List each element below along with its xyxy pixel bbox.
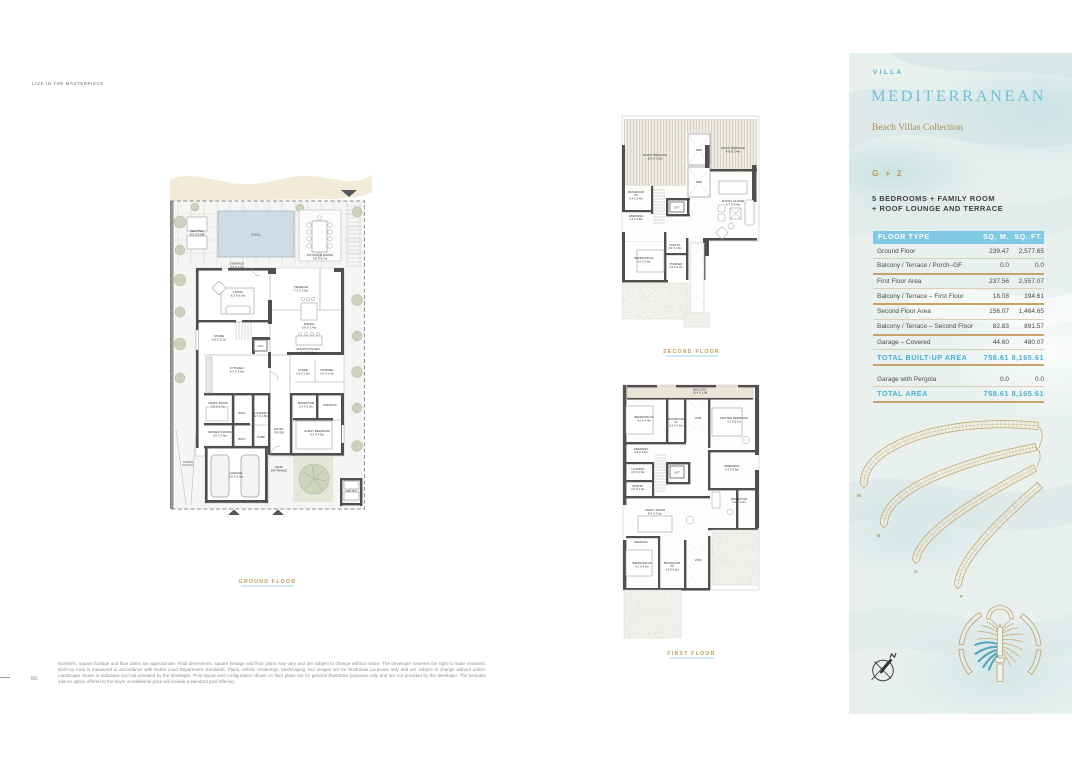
- svg-text:2.0 X 1.6m: 2.0 X 1.6m: [631, 470, 645, 474]
- svg-text:1.7 X 2.5m: 1.7 X 2.5m: [254, 414, 268, 418]
- svg-text:M: M: [857, 493, 861, 498]
- svg-text:6.3 X 6.0m: 6.3 X 6.0m: [231, 293, 246, 297]
- svg-text:4.5 X 5.5M: 4.5 X 5.5M: [190, 232, 205, 236]
- svg-text:1.6 X 2.3m: 1.6 X 2.3m: [669, 265, 683, 269]
- svg-text:POOL: POOL: [251, 233, 261, 237]
- svg-text:10.4 X 1.08: 10.4 X 1.08: [693, 391, 708, 395]
- svg-text:4.1 X 4.0m: 4.1 X 4.0m: [310, 432, 325, 436]
- svg-text:PARKING: PARKING: [182, 464, 193, 467]
- svg-text:4.1 X 4.0m: 4.1 X 4.0m: [732, 500, 746, 504]
- svg-text:DRESSING: DRESSING: [634, 540, 648, 544]
- svg-text:ENTRANCE: ENTRANCE: [271, 468, 287, 472]
- svg-text:8.5 X 7.2m: 8.5 X 7.2m: [648, 157, 663, 161]
- svg-text:BATH: BATH: [239, 437, 246, 441]
- svg-text:4.2 X 4.4m: 4.2 X 4.4m: [637, 418, 652, 422]
- svg-text:4.9 X 3.4m: 4.9 X 3.4m: [726, 150, 741, 154]
- svg-text:4.7 X 2.8m: 4.7 X 2.8m: [725, 467, 740, 471]
- svg-text:VOID: VOID: [695, 558, 702, 562]
- svg-text:DRESSING: DRESSING: [323, 403, 337, 407]
- svg-text:2.6 X 2.4m: 2.6 X 2.4m: [634, 450, 648, 454]
- svg-text:BATH: BATH: [239, 411, 246, 415]
- svg-text:3.4 X 2.4m: 3.4 X 2.4m: [301, 350, 316, 354]
- svg-text:4.1 X 5.1m: 4.1 X 5.1m: [727, 419, 742, 423]
- svg-text:VOID: VOID: [695, 416, 702, 420]
- svg-text:LIFT: LIFT: [674, 471, 680, 475]
- svg-text:4.2 X 3.6m: 4.2 X 3.6m: [637, 259, 652, 263]
- svg-text:GROUND FLOOR: GROUND FLOOR: [239, 579, 297, 585]
- svg-text:2.6 X 2.7m: 2.6 X 2.7m: [211, 404, 226, 408]
- svg-text:ROD: ROD: [696, 148, 702, 152]
- svg-text:ROD: ROD: [696, 180, 702, 184]
- svg-text:2.4 X 3.3m: 2.4 X 3.3m: [299, 404, 314, 408]
- svg-text:1.9 X 4.5m: 1.9 X 4.5m: [665, 567, 679, 571]
- svg-text:2.6 X 3.1m: 2.6 X 3.1m: [212, 337, 227, 341]
- svg-text:PUMP: PUMP: [257, 435, 265, 439]
- svg-text:P: P: [960, 594, 963, 599]
- svg-text:2.0 X 1.0m: 2.0 X 1.0m: [631, 487, 645, 491]
- svg-text:5.0 X 6.0m: 5.0 X 6.0m: [229, 474, 244, 478]
- svg-text:7.2 X 3.5m: 7.2 X 3.5m: [294, 288, 309, 292]
- svg-text:1.4 X 2.8m: 1.4 X 2.8m: [629, 217, 643, 221]
- svg-text:8.4 X 3.3m: 8.4 X 3.3m: [648, 511, 663, 515]
- svg-text:3.8 X 5.7m: 3.8 X 5.7m: [313, 256, 328, 260]
- svg-text:6.3 X 3.9m: 6.3 X 3.9m: [230, 369, 245, 373]
- svg-text:SECOND FLOOR: SECOND FLOOR: [663, 349, 720, 355]
- svg-text:4.7 X 9.4m: 4.7 X 9.4m: [726, 203, 741, 207]
- svg-text:2.5 X 1.4m: 2.5 X 1.4m: [320, 371, 335, 375]
- svg-text:5.6 X 3.4m: 5.6 X 3.4m: [302, 325, 317, 329]
- svg-text:N: N: [877, 533, 881, 538]
- svg-text:LIFT: LIFT: [674, 206, 680, 210]
- svg-text:O: O: [914, 569, 918, 574]
- svg-text:1.9 X 1.5m: 1.9 X 1.5m: [296, 371, 311, 375]
- svg-text:FOYER: FOYER: [274, 430, 284, 434]
- svg-text:4.1 X 4.0m: 4.1 X 4.0m: [635, 564, 650, 568]
- svg-text:2.6 X 2.6m: 2.6 X 2.6m: [213, 433, 228, 437]
- svg-text:2.6 X 4.4m: 2.6 X 4.4m: [669, 423, 683, 427]
- svg-text:2.4 X 2.4m: 2.4 X 2.4m: [629, 196, 643, 200]
- svg-text:LIFT: LIFT: [258, 344, 264, 348]
- svg-text:2.0 X 1.0m: 2.0 X 1.0m: [668, 246, 682, 250]
- svg-text:FIRST FLOOR: FIRST FLOOR: [667, 651, 715, 657]
